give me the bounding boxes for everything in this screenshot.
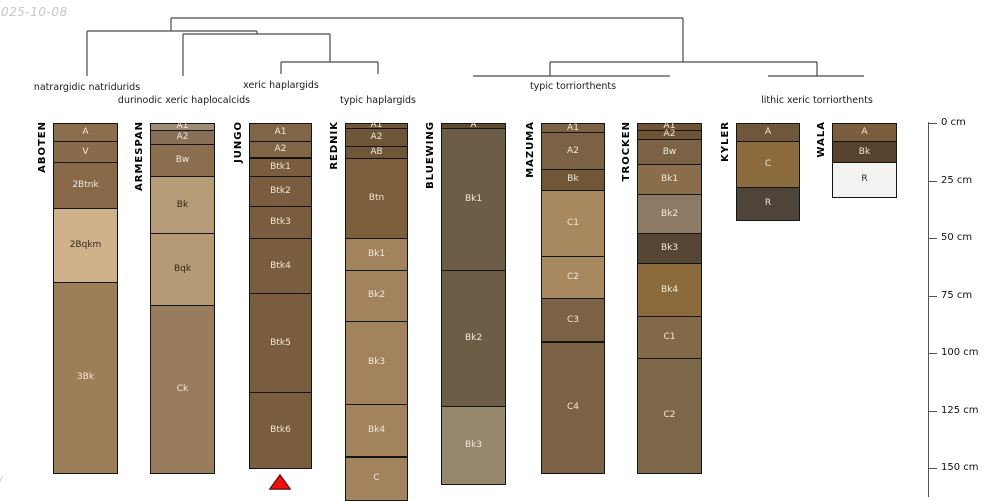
horizon-layer: V — [53, 141, 118, 163]
group-label: typic haplargids — [340, 95, 416, 106]
depth-tick — [928, 181, 937, 182]
horizon-layer: Btk6 — [249, 392, 312, 469]
profile-name-label: ABOTEN — [37, 121, 48, 173]
horizon-label: Bk1 — [465, 195, 482, 204]
horizon-layer: R — [832, 162, 897, 198]
horizon-layer: A — [53, 123, 118, 142]
depth-tick-label: 75 cm — [941, 290, 972, 301]
horizon-layer: 2Bqkm — [53, 208, 118, 283]
horizon-layer: A2 — [150, 130, 215, 145]
horizon-layer: Btk3 — [249, 206, 312, 239]
horizon-layer: Btk2 — [249, 176, 312, 207]
horizon-label: Bk2 — [465, 334, 482, 343]
horizon-label: C — [765, 160, 771, 169]
horizon-label: 2Btnk — [72, 181, 98, 190]
profile-name-label: BLUEWING — [425, 121, 436, 189]
horizon-label: A2 — [567, 147, 579, 156]
group-label: natrargidic natridurids — [34, 82, 140, 93]
horizon-label: A2 — [275, 145, 287, 154]
horizon-layer: A2 — [541, 132, 605, 170]
horizon-layer: C4 — [541, 342, 605, 474]
horizon-layer: A — [736, 123, 800, 142]
horizon-layer: Bqk — [150, 233, 215, 305]
horizon-label: C4 — [567, 403, 579, 412]
horizon-label: A1 — [275, 128, 287, 137]
horizon-layer: A2 — [345, 128, 408, 147]
horizon-label: Btk6 — [270, 426, 291, 435]
horizon-layer: C3 — [541, 298, 605, 343]
horizon-layer: C — [345, 457, 408, 501]
horizon-label: Btk1 — [270, 163, 291, 172]
horizon-label: A — [765, 128, 771, 137]
horizon-label: C3 — [567, 316, 579, 325]
horizon-label: C1 — [663, 333, 675, 342]
horizon-label: 2Bqkm — [70, 241, 102, 250]
horizon-label: Bk1 — [368, 250, 385, 259]
depth-tick — [928, 353, 937, 354]
depth-tick-label: 25 cm — [941, 175, 972, 186]
horizon-layer: C2 — [637, 358, 702, 474]
depth-tick — [928, 123, 937, 124]
horizon-label: A — [861, 128, 867, 137]
horizon-label: Bk1 — [661, 175, 678, 184]
depth-tick-label: 125 cm — [941, 405, 979, 416]
horizon-layer: C2 — [541, 256, 605, 298]
depth-tick-label: 50 cm — [941, 232, 972, 243]
horizon-label: R — [861, 175, 867, 184]
group-label: typic torriorthents — [530, 81, 616, 92]
horizon-layer: Bw — [150, 144, 215, 177]
depth-axis-line — [928, 122, 929, 497]
horizon-layer: A — [832, 123, 897, 142]
horizon-layer: A2 — [249, 141, 312, 158]
horizon-layer: Bk2 — [637, 194, 702, 234]
horizon-label: C1 — [567, 219, 579, 228]
depth-tick-label: 100 cm — [941, 347, 979, 358]
horizon-layer: Bk — [832, 141, 897, 163]
horizon-label: Bw — [176, 156, 190, 165]
horizon-label: Bk3 — [368, 358, 385, 367]
profile-name-label: ARMESPAN — [134, 121, 145, 191]
horizon-label: Bk2 — [368, 291, 385, 300]
horizon-layer: Bk3 — [441, 406, 506, 485]
profile-name-label: JUNGO — [233, 121, 244, 163]
horizon-label: Btn — [369, 194, 384, 203]
depth-tick — [928, 296, 937, 297]
group-label: xeric haplargids — [243, 80, 319, 91]
depth-tick-label: 0 cm — [941, 117, 966, 128]
triangle-shape — [270, 475, 290, 489]
horizon-label: Bk — [567, 175, 578, 184]
watermark-fragment: / — [0, 474, 2, 488]
horizon-layer: Bk1 — [441, 128, 506, 272]
horizon-label: Bw — [663, 148, 677, 157]
horizon-layer: Btn — [345, 158, 408, 240]
horizon-label: Bk3 — [661, 244, 678, 253]
horizon-label: V — [82, 148, 88, 157]
horizon-label: C — [373, 474, 379, 483]
horizon-layer: Ck — [150, 305, 215, 474]
horizon-layer: 2Btnk — [53, 162, 118, 209]
group-label: durinodic xeric haplocalcids — [118, 95, 250, 106]
horizon-label: A — [82, 128, 88, 137]
horizon-label: Bk — [177, 201, 188, 210]
depth-tick — [928, 468, 937, 469]
horizon-label: A2 — [371, 133, 383, 142]
horizon-layer: Btk4 — [249, 238, 312, 294]
profile-name-label: MAZUMA — [525, 121, 536, 178]
horizon-label: Bk4 — [661, 286, 678, 295]
horizon-layer: Bk3 — [345, 321, 408, 405]
horizon-layer: Bk1 — [345, 238, 408, 271]
horizon-layer: A1 — [249, 123, 312, 142]
horizon-layer: R — [736, 187, 800, 220]
depth-tick-label: 150 cm — [941, 462, 979, 473]
group-label: lithic xeric torriorthents — [761, 95, 873, 106]
horizon-layer: C1 — [637, 316, 702, 358]
sample-marker-triangle — [268, 473, 292, 492]
profile-name-label: KYLER — [720, 121, 731, 162]
horizon-label: 3Bk — [77, 373, 94, 382]
horizon-label: Btk3 — [270, 218, 291, 227]
horizon-layer: Btk1 — [249, 158, 312, 177]
horizon-label: R — [765, 199, 771, 208]
horizon-layer: Bk3 — [637, 233, 702, 264]
horizon-label: Bk2 — [661, 210, 678, 219]
horizon-label: Btk2 — [270, 187, 291, 196]
horizon-layer: 3Bk — [53, 282, 118, 474]
profile-name-label: REDNIK — [329, 121, 340, 170]
horizon-label: Btk4 — [270, 262, 291, 271]
horizon-layer: C — [736, 141, 800, 188]
horizon-layer: Bk1 — [637, 164, 702, 195]
depth-tick — [928, 411, 937, 412]
horizon-layer: Bk — [150, 176, 215, 235]
horizon-label: A2 — [177, 133, 189, 142]
horizon-label: Btk5 — [270, 339, 291, 348]
horizon-label: Bqk — [174, 265, 191, 274]
horizon-layer: C1 — [541, 190, 605, 258]
horizon-label: Bk — [859, 148, 870, 157]
horizon-layer: Bk4 — [345, 404, 408, 458]
horizon-layer: Bw — [637, 139, 702, 165]
profile-name-label: WALA — [816, 121, 827, 157]
horizon-label: Ck — [177, 385, 189, 394]
depth-tick — [928, 238, 937, 239]
horizon-layer: Bk2 — [441, 270, 506, 407]
horizon-label: Bk4 — [368, 426, 385, 435]
horizon-layer: Bk2 — [345, 270, 408, 322]
horizon-label: C2 — [567, 273, 579, 282]
horizon-layer: Bk4 — [637, 263, 702, 317]
horizon-label: AB — [370, 148, 382, 157]
horizon-label: Bk3 — [465, 441, 482, 450]
horizon-layer: Btk5 — [249, 293, 312, 393]
horizon-label: C2 — [663, 411, 675, 420]
horizon-layer: Bk — [541, 169, 605, 191]
profile-name-label: TROCKEN — [621, 121, 632, 181]
